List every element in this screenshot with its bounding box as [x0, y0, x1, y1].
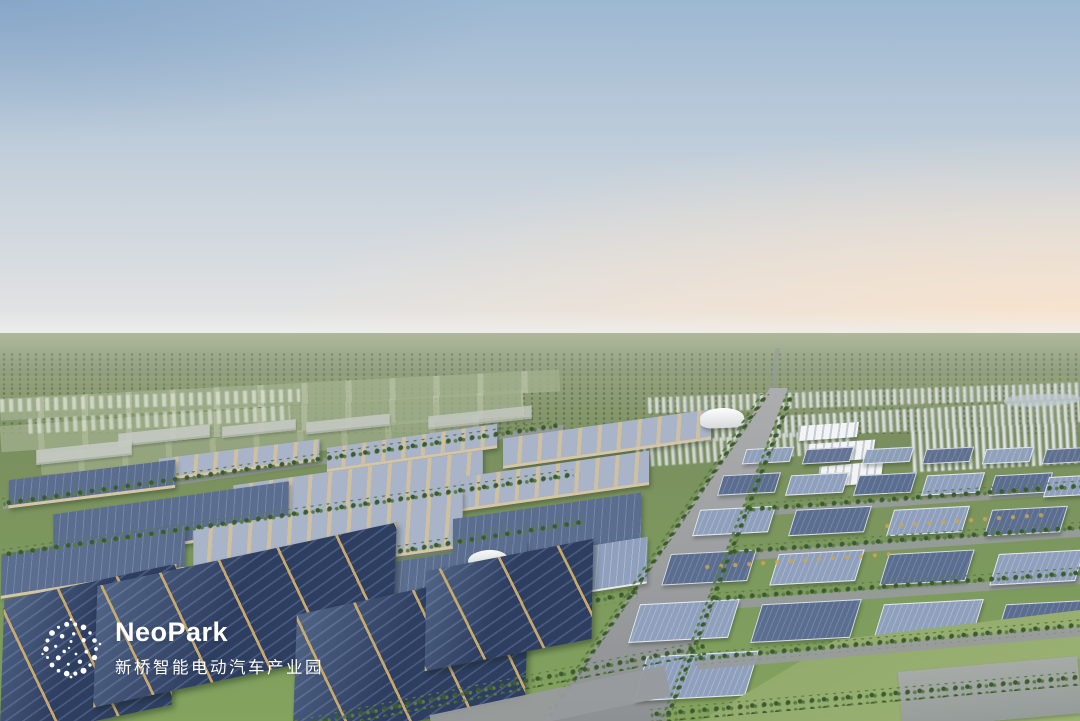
warehouse — [862, 447, 915, 465]
warehouse — [788, 506, 872, 536]
scene-blocks — [0, 0, 1080, 721]
warehouse — [750, 599, 862, 643]
logo-brand: NeoPark — [115, 618, 324, 646]
warehouse — [922, 447, 975, 465]
warehouse — [785, 472, 849, 495]
logo-mark — [40, 616, 102, 680]
aerial-rendering: NeoPark 新桥智能电动汽车产业园 — [0, 0, 1080, 721]
warehouse — [802, 447, 855, 465]
warehouse — [628, 599, 740, 643]
logo-dots-icon — [40, 616, 102, 680]
logo: NeoPark 新桥智能电动汽车产业园 — [40, 616, 324, 680]
warehouse — [982, 447, 1035, 465]
logo-subtitle: 新桥智能电动汽车产业园 — [115, 654, 324, 678]
logo-text: NeoPark 新桥智能电动汽车产业园 — [115, 618, 324, 677]
distant-town — [911, 422, 1080, 473]
warehouse — [1042, 447, 1080, 465]
residential-towers — [797, 422, 859, 441]
